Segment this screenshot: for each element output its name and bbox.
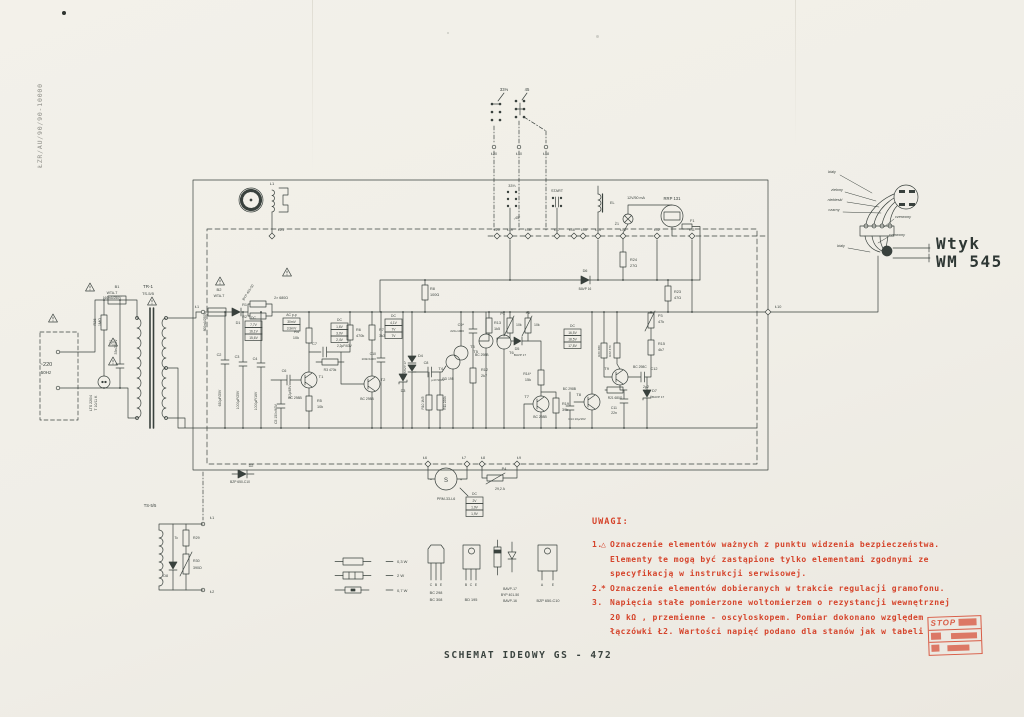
schematic-label: BD 195 bbox=[442, 377, 453, 381]
schematic-label: T 10/11 K bbox=[94, 395, 98, 411]
note-line: Elementy te mogą być zastąpione tylko el… bbox=[592, 555, 1002, 564]
schematic-label: LTS 220/4 bbox=[89, 395, 93, 411]
schematic-label: C4 bbox=[253, 357, 258, 361]
schematic-label: BC 308 bbox=[430, 598, 443, 602]
schematic-label: T4 bbox=[438, 366, 443, 371]
schematic-label: R5 bbox=[317, 399, 322, 403]
schematic-label: BZP 650-C10 bbox=[230, 480, 250, 484]
schematic-label: + bbox=[460, 477, 463, 482]
schematic-label: biały bbox=[828, 170, 837, 174]
value-box-row: 2,4V bbox=[336, 338, 344, 342]
schematic-label: T9 bbox=[604, 366, 609, 371]
junction-dots bbox=[103, 279, 693, 429]
stamp-mark bbox=[931, 632, 941, 639]
schematic-label: Ł12 bbox=[654, 228, 660, 232]
schematic-label: Ł17 bbox=[554, 228, 560, 232]
schematic-label: 27Ω bbox=[630, 264, 637, 268]
value-box-row: 7V bbox=[391, 327, 396, 331]
schematic-label: zielony bbox=[830, 188, 844, 192]
schematic-label: T2 bbox=[381, 377, 386, 382]
schematic-label: − bbox=[430, 477, 433, 482]
print-code: ŁZR/AU/90/90-10000 bbox=[36, 83, 44, 168]
schematic-label: 2 W bbox=[397, 573, 404, 578]
schematic-label: WTA-T bbox=[214, 294, 226, 298]
schematic-label: D2 bbox=[249, 464, 254, 468]
value-box-header: DC bbox=[391, 314, 396, 318]
schematic-label: C14 10μ/16V bbox=[568, 417, 586, 421]
schematic-label: WTA-T bbox=[107, 291, 119, 295]
schematic-label: S bbox=[444, 478, 448, 484]
plug-label-line1: Wtyk bbox=[936, 234, 981, 253]
schematic-label: 2k7 bbox=[481, 374, 487, 378]
solenoid-el bbox=[598, 186, 603, 233]
schematic-label: BC 298B bbox=[563, 387, 577, 391]
schematic-label: R12 bbox=[481, 368, 488, 372]
schematic-label: 2× 680Ω bbox=[274, 296, 288, 300]
schematic-label: biały bbox=[837, 244, 846, 248]
schematic-label: Ł1 bbox=[195, 305, 199, 309]
schematic-label: 47k bbox=[658, 320, 664, 324]
schematic-label: T7 bbox=[524, 394, 529, 399]
schematic-label: 45 bbox=[525, 87, 530, 92]
schematic-label: 1k5 bbox=[494, 327, 500, 331]
schematic-label: R24 bbox=[630, 258, 637, 262]
schematic-label: Ł1 bbox=[210, 516, 214, 520]
schematic-label: BAVP 17 bbox=[514, 353, 527, 357]
schematic-label: D4 bbox=[418, 354, 423, 358]
schematic-label: Ł16 bbox=[569, 228, 575, 232]
upper-rail bbox=[380, 236, 700, 312]
schematic-label: P2 bbox=[526, 311, 531, 315]
schematic-label: 2×BAVP 17 bbox=[403, 361, 407, 377]
schematic-label: BC 298B bbox=[360, 397, 374, 401]
schematic-label: C1 bbox=[109, 340, 113, 345]
schematic-label: czerwony bbox=[889, 233, 906, 237]
schematic-label: BZP 650-C10 bbox=[537, 599, 560, 603]
schematic-label: „45” bbox=[514, 216, 521, 220]
note-number: 2. bbox=[592, 584, 601, 593]
terminal-markers bbox=[269, 233, 771, 467]
schematic-label: PRM-33-L6 bbox=[437, 497, 455, 501]
schematic-label: R26 bbox=[93, 319, 97, 326]
schematic-label: Ł15 bbox=[581, 228, 587, 232]
schematic-label: 630μF/25V bbox=[218, 389, 222, 406]
schematic-label: R30 bbox=[193, 559, 200, 563]
stamp-mark bbox=[958, 618, 976, 626]
schematic-label: C bbox=[470, 583, 473, 587]
schematic-label: C2 bbox=[217, 353, 222, 357]
schematic-label: R14* bbox=[523, 372, 531, 376]
schematic-label: 1000μF/25V bbox=[236, 390, 240, 409]
schematic-label: 33⅓ bbox=[500, 87, 509, 92]
schematic-label: TS-5/5 bbox=[144, 503, 157, 508]
schematic-label: RRP 131 bbox=[664, 196, 682, 201]
schematic-label: R22 470 bbox=[608, 345, 612, 357]
red-stamp: STOP bbox=[927, 615, 982, 656]
schematic-label: R1 bbox=[242, 303, 247, 307]
schematic-label: R23 bbox=[674, 290, 681, 294]
value-box-row: 1,6V bbox=[336, 325, 344, 329]
schematic-label: BYP 401-50 bbox=[242, 284, 255, 302]
schematic-label: B1 bbox=[115, 285, 120, 289]
schematic-label: BC 298 bbox=[430, 591, 443, 595]
schematic-label: B bbox=[435, 583, 438, 587]
schematic-label: BAVP 16 bbox=[579, 287, 592, 291]
legend-symbols bbox=[335, 540, 557, 593]
schematic-label: Ł10 bbox=[775, 305, 781, 309]
schematic-label: Ł10 bbox=[516, 152, 522, 156]
schematic-label: 3k3 bbox=[379, 334, 385, 338]
schematic-label: R15 bbox=[658, 342, 665, 346]
schematic-label: L1 bbox=[270, 181, 275, 186]
note-text: Napięcia stałe pomierzone woltomierzem o… bbox=[610, 598, 950, 607]
schematic-label: R20 680 bbox=[597, 345, 601, 357]
schematic-label: R4 bbox=[294, 330, 299, 334]
value-box-header: DC bbox=[570, 324, 575, 328]
schematic-label: Ł18 bbox=[525, 228, 531, 232]
stamp-mark bbox=[931, 645, 939, 652]
schematic-label: czarny bbox=[828, 208, 840, 212]
schematic-label: 390Ω bbox=[193, 566, 202, 570]
value-box-row: 30mV bbox=[287, 320, 296, 324]
schematic-label: Ł8 bbox=[481, 456, 485, 460]
schematic-label: C10 bbox=[370, 352, 376, 356]
schematic-label: 10k bbox=[317, 405, 323, 409]
schematic-label: E bbox=[475, 583, 478, 587]
schematic-label: BC 298B bbox=[533, 415, 547, 419]
note-line: 3.Napięcia stałe pomierzone woltomierzem… bbox=[592, 598, 1002, 607]
schematic-label: 10k bbox=[516, 323, 522, 327]
voltage-value-boxes: DC7,7V16,1V15,6VAC p-p30mV3,9mVDC1,6V3,0… bbox=[245, 313, 581, 517]
schematic-label: D7 bbox=[652, 389, 657, 393]
value-box-row: 16,5V bbox=[568, 331, 577, 335]
schematic-label: T8 bbox=[576, 392, 581, 397]
schematic-label: D6 bbox=[583, 269, 588, 273]
notes-heading: UWAGI: bbox=[592, 517, 1002, 527]
schematic-label: R6 bbox=[356, 328, 361, 332]
schematic-label: 800mA/250V bbox=[203, 312, 207, 331]
schematic-label: R29 bbox=[193, 536, 200, 540]
note-text: 20 kΩ , przemienne - oscyloskopem. Pomia… bbox=[610, 613, 924, 622]
schematic-label: START bbox=[551, 189, 564, 193]
schematic-label: Ł11 bbox=[689, 228, 695, 232]
note-text: łączówki Ł2. Wartości napięć podano dla … bbox=[610, 627, 924, 636]
triangle-icon: △ bbox=[601, 540, 610, 549]
schematic-label: TS-5/5 bbox=[142, 291, 155, 296]
schematic-label: Ż1 bbox=[615, 221, 619, 226]
value-box-header: DC bbox=[337, 318, 342, 322]
schematic-label: R11 220k bbox=[443, 396, 447, 410]
schematic-label: R19 bbox=[562, 402, 569, 406]
note-icon-spacer bbox=[601, 598, 610, 607]
schematic-label: D1 bbox=[236, 321, 241, 325]
schematic-label: Ł13 bbox=[620, 228, 626, 232]
schematic-label: BAVP-16 bbox=[503, 599, 517, 603]
note-line: 2.*Oznaczenie elementów dobieranych w tr… bbox=[592, 584, 1002, 593]
schematic-label: Ł14 bbox=[595, 228, 601, 232]
schematic-label: BC 298B bbox=[288, 396, 302, 400]
schematic-label: 1000μF/16V bbox=[254, 391, 258, 410]
schematic-label: TR-1 bbox=[143, 284, 153, 289]
speed-selector-wiring bbox=[492, 93, 548, 230]
schematic-label: E bbox=[552, 583, 555, 587]
frame bbox=[193, 180, 768, 470]
schematic-label: BD 195 bbox=[465, 598, 478, 602]
schematic-label: R2 bbox=[242, 315, 247, 319]
value-box-row: 4,1V bbox=[390, 321, 398, 325]
schematic-label: 47Ω bbox=[674, 296, 681, 300]
schematic-label: Ł2 bbox=[210, 590, 214, 594]
schematic-label: C11 bbox=[611, 406, 617, 410]
value-box-row: 1,9V bbox=[471, 505, 479, 509]
scanned-schematic-page: DC7,7V16,1V15,6VAC p-p30mV3,9mVDC1,6V3,0… bbox=[0, 0, 1024, 717]
schematic-label: 22n bbox=[611, 411, 617, 415]
schematic-label: Ł7 bbox=[462, 456, 466, 460]
schematic-label: 39k bbox=[562, 408, 568, 412]
value-box-row: 18,5V bbox=[568, 337, 577, 341]
schematic-label: T5 bbox=[473, 349, 478, 354]
schematic-label: Ł6 bbox=[423, 456, 427, 460]
schematic-label: niebieski bbox=[828, 198, 843, 202]
schematic-label: 100Ω bbox=[430, 293, 439, 297]
schematic-label: E bbox=[440, 583, 443, 587]
schematic-label: 220÷1000 bbox=[450, 329, 464, 333]
note-number: 1. bbox=[592, 540, 601, 549]
value-box-row: 3,0V bbox=[336, 331, 344, 335]
schematic-label: 100n/100V bbox=[361, 357, 376, 361]
schematic-label: 10k bbox=[293, 336, 299, 340]
schematic-label: 4k7 bbox=[658, 348, 664, 352]
note-text: specyfikacją w instrukcji serwisowej. bbox=[610, 569, 807, 578]
schematic-label: C6 bbox=[282, 369, 287, 373]
value-box-header: AC p-p bbox=[286, 313, 297, 317]
note-line: 1.△Oznaczenie elementów ważnych z punktu… bbox=[592, 540, 1002, 549]
schematic-label: 33n/250V bbox=[114, 339, 118, 355]
schematic-label: Ł19 bbox=[507, 228, 513, 232]
schematic-label: C3 bbox=[235, 355, 240, 359]
schematic-label: 2,2μF/63V bbox=[337, 344, 353, 348]
schematic-label: BAVP 17 bbox=[652, 395, 665, 399]
value-box-row: 2V bbox=[472, 499, 477, 503]
schematic-label: Tc bbox=[175, 536, 179, 540]
schematic-label: P1 bbox=[500, 312, 505, 316]
schematic-label: 470k bbox=[356, 334, 364, 338]
schematic-label: F1 bbox=[690, 219, 694, 223]
schematic-label: 160mA/250V bbox=[103, 296, 122, 300]
value-box-row: 15,6V bbox=[249, 336, 258, 340]
schematic-label: 50Hz bbox=[41, 370, 52, 375]
speed-switch bbox=[507, 191, 517, 233]
asterisk-icon: * bbox=[601, 584, 610, 593]
schematic-label: B2 bbox=[217, 287, 223, 292]
schematic-label: Ł9 bbox=[517, 456, 521, 460]
schematic-label: czerwony bbox=[895, 215, 912, 219]
schematic-label: P3 bbox=[658, 314, 663, 318]
schematic-label: R8 bbox=[430, 287, 435, 291]
value-box-header: DC bbox=[472, 492, 477, 496]
value-box-row: 17,8V bbox=[568, 344, 577, 348]
schematic-label: EL bbox=[610, 201, 615, 205]
stroboscope-tacho bbox=[239, 188, 288, 233]
note-text: Elementy te mogą być zastąpione tylko el… bbox=[610, 555, 929, 564]
schematic-label: Ł20 bbox=[494, 228, 500, 232]
stamp-mark bbox=[947, 645, 969, 652]
schematic-label: C bbox=[430, 583, 433, 587]
schematic-label: C12 bbox=[651, 367, 658, 371]
schematic-label: Ł20 bbox=[491, 152, 497, 156]
drawing-title: SCHEMAT IDEOWY GS - 472 bbox=[444, 650, 612, 661]
schematic-label: BYP 401-50 bbox=[501, 593, 519, 597]
schematic-label: D3 bbox=[401, 389, 406, 393]
schematic-label: D5 bbox=[515, 347, 520, 351]
schematic-label: C7 bbox=[312, 342, 317, 346]
schematic-label: D8 bbox=[163, 574, 168, 578]
rectifier-rail bbox=[196, 301, 768, 319]
schematic-label: P4 bbox=[502, 467, 507, 471]
schematic-label: 33⅓ bbox=[508, 184, 516, 188]
schematic-label: C9* bbox=[458, 323, 465, 327]
schematic-label: Ł21 bbox=[278, 228, 284, 232]
cartridge-and-plug bbox=[768, 175, 930, 312]
schematic-label: C8 bbox=[424, 361, 429, 365]
schematic-label: R21 680Ω bbox=[608, 396, 623, 400]
schematic-label: R10 1M5 bbox=[421, 396, 425, 409]
note-number: 3. bbox=[592, 598, 601, 607]
plug-label-line2: WM 545 bbox=[936, 252, 1003, 271]
note-text: Oznaczenie elementów dobieranych w trakc… bbox=[610, 584, 945, 593]
schematic-label: 1MΩ bbox=[98, 318, 102, 326]
motor-rrp131 bbox=[661, 205, 700, 280]
schematic-label: R7 bbox=[379, 328, 384, 332]
schematic-label: R13 bbox=[494, 321, 501, 325]
schematic-label: B bbox=[465, 583, 468, 587]
schematic-label: A bbox=[541, 583, 544, 587]
schematic-label: R3 470k bbox=[324, 368, 337, 372]
schematic-label: 2μ2 bbox=[643, 385, 649, 389]
schematic-label: 29,2 A bbox=[495, 487, 506, 491]
schematic-label: 0,3 W bbox=[397, 559, 408, 564]
value-box-row: 16,1V bbox=[249, 329, 258, 333]
schematic-label: 15k bbox=[525, 378, 531, 382]
value-box-row: 7,7V bbox=[250, 323, 258, 327]
value-box-header: DC bbox=[251, 316, 256, 320]
schematic-label: BC 298C bbox=[633, 365, 647, 369]
schematic-label: 10k bbox=[534, 323, 540, 327]
note-text: Oznaczenie elementów ważnych z punktu wi… bbox=[610, 540, 940, 549]
schematic-label: ~220 bbox=[40, 362, 52, 368]
value-box-row: 7V bbox=[391, 334, 396, 338]
note-line: specyfikacją w instrukcji serwisowej. bbox=[592, 569, 1002, 578]
stamp-mark bbox=[951, 632, 977, 639]
schematic-label: C5 150n/63V bbox=[274, 403, 278, 424]
schematic-label: 12V/50 mA bbox=[627, 196, 645, 200]
schematic-label: BAVP-17 bbox=[503, 587, 517, 591]
schematic-label: 0,7 W bbox=[397, 588, 408, 593]
schematic-label: T1 bbox=[319, 374, 324, 379]
value-box-row: 1,9V bbox=[471, 512, 479, 516]
stamp-row bbox=[929, 641, 981, 654]
diode-d2 bbox=[232, 470, 254, 478]
schematic-label: Ł18 bbox=[543, 152, 549, 156]
terminal-strip bbox=[488, 236, 766, 312]
